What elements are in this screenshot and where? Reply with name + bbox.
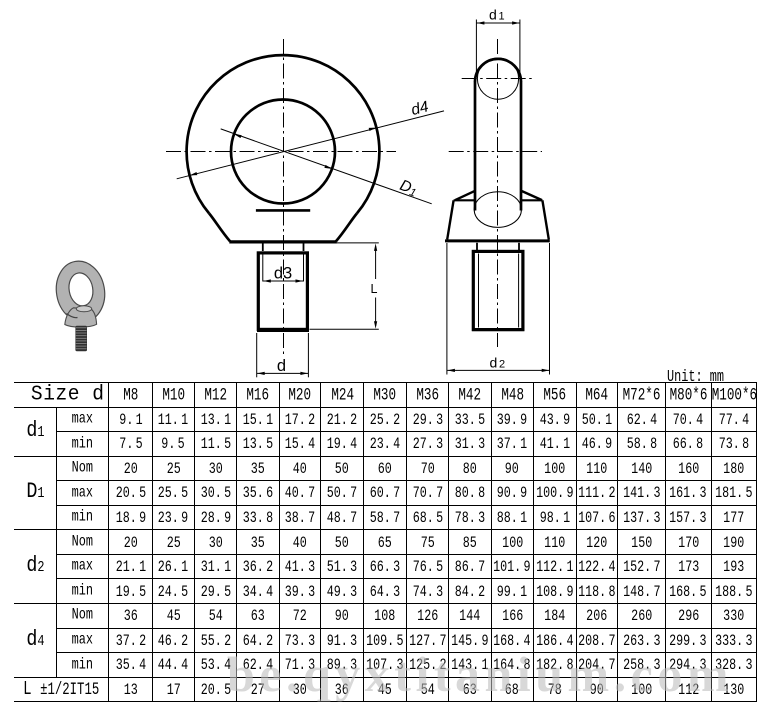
svg-text:d3: d3 <box>274 265 292 283</box>
svg-text:d: d <box>490 355 498 371</box>
svg-text:D1: D1 <box>397 177 419 200</box>
svg-text:2: 2 <box>499 359 505 371</box>
svg-text:d: d <box>489 7 497 23</box>
svg-text:L: L <box>371 282 378 296</box>
svg-text:1: 1 <box>499 11 505 23</box>
svg-text:d4: d4 <box>409 98 430 119</box>
svg-text:d: d <box>277 357 286 375</box>
